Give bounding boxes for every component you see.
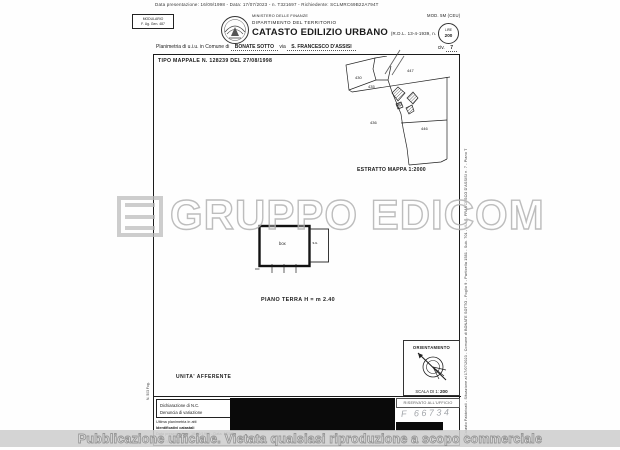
scanned-cadastral-document: Data presentazione: 16/09/1998 - Data: 1… xyxy=(0,0,620,450)
scan-header-line: Data presentazione: 16/09/1998 - Data: 1… xyxy=(155,2,379,7)
map-caption: ESTRATTO MAPPA 1:2000 xyxy=(357,167,426,173)
checkbox-nc-label: Dichiarazione di N.C. xyxy=(160,403,199,408)
compass-icon xyxy=(406,350,458,384)
modulario-box: MODULARIO F. Ug. Gen. 487 xyxy=(132,14,174,29)
modulario-line2: F. Ug. Gen. 487 xyxy=(133,22,173,27)
civ-label: civ. xyxy=(438,45,445,51)
footer-divider xyxy=(153,396,461,397)
state-emblem-icon xyxy=(218,13,252,47)
stamp-value: 200 xyxy=(439,33,458,39)
tipo-mappale-line: TIPO MAPPALE N. 128239 DEL 27/08/1998 xyxy=(158,58,272,64)
checkbox-variazione-label: Denuncia di variazione xyxy=(160,410,202,415)
edicom-logo-icon xyxy=(117,196,163,237)
civ-field: civ. 7 xyxy=(438,45,457,51)
scale-label: SCALA DI 1: 200 xyxy=(404,389,459,394)
planimetria-row: Planimetria di u.i.u. in Comune di BONAT… xyxy=(156,44,459,50)
room-label: box xyxy=(279,241,287,246)
document-title: CATASTO EDILIZIO URBANO (R.D.L. 13-4-193… xyxy=(252,27,442,38)
map-building xyxy=(407,92,418,104)
map-extract: 430 435 447 436 446 450 xyxy=(335,56,461,174)
mod-label: MOD. 5M (CEU) xyxy=(427,13,460,18)
watermark-band-text: Pubblicazione ufficiale. Vietata qualsia… xyxy=(78,432,542,446)
scale-value: 200 xyxy=(440,389,448,394)
civ-value: 7 xyxy=(446,45,457,52)
map-building xyxy=(406,105,414,114)
declaration-row: Dichiarazione di N.C. ✕ xyxy=(160,402,238,409)
floor-plan-caption: PIANO TERRA H = m 2.40 xyxy=(261,297,335,303)
left-margin-text: N. 503 Fog. xyxy=(146,358,150,400)
comune-value: BONATE SOTTO xyxy=(231,44,278,51)
parcel-label: 436 xyxy=(370,120,377,125)
watermark-text: GRUPPO EDICOM xyxy=(170,191,545,239)
map-building xyxy=(392,87,405,101)
via-value: S. FRANCESCO D'ASSISI xyxy=(287,44,355,51)
parcel-label: 435 xyxy=(368,84,375,89)
stamp-currency: LIRE xyxy=(445,28,452,32)
redacted-area xyxy=(230,398,395,431)
right-margin-text: Catasto Fabbricati - Situazione al 17/07… xyxy=(463,108,469,436)
orientation-box: ORIENTAMENTO SCALA DI 1: 200 xyxy=(403,340,460,396)
document-header: MINISTERO DELLE FINANZE DIPARTIMENTO DEL… xyxy=(252,14,442,38)
ministry-name: MINISTERO DELLE FINANZE xyxy=(252,14,442,18)
office-handwriting: F 66734 xyxy=(401,407,452,419)
parcel-label: 450 xyxy=(396,103,402,107)
watermark-band: Pubblicazione ufficiale. Vietata qualsia… xyxy=(0,430,620,447)
department-name: DIPARTIMENTO DEL TERRITORIO xyxy=(252,20,442,25)
via-label: via xyxy=(279,44,285,50)
parcel-label: 446 xyxy=(421,126,428,131)
parcel-label: 447 xyxy=(407,68,414,73)
lire-stamp-icon: LIRE 200 xyxy=(438,23,459,44)
annex-label: s.u. xyxy=(313,241,319,245)
variation-row: Denuncia di variazione xyxy=(160,409,238,416)
unita-afferente-label: UNITA' AFFERENTE xyxy=(176,374,231,380)
parcel-label: 430 xyxy=(355,75,362,80)
planimetria-prefix: Planimetria di u.i.u. in Comune di xyxy=(156,44,229,50)
